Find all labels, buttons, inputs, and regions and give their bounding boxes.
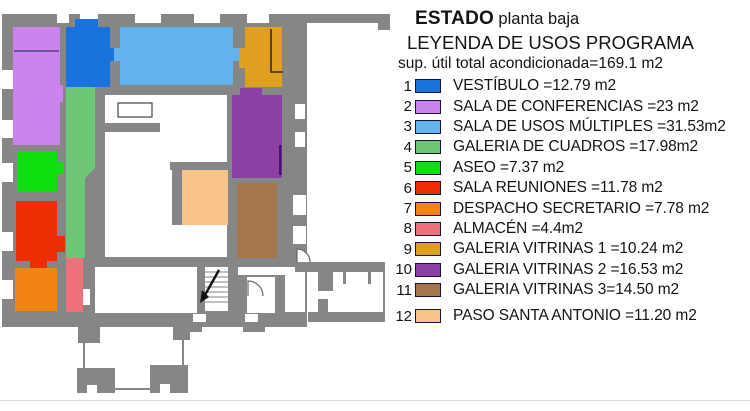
legend-item: 3 SALA DE USOS MÚLTIPLES =31.53m2 bbox=[388, 117, 750, 137]
legend-item-number: 12 bbox=[388, 308, 412, 325]
legend-color-swatch bbox=[415, 309, 441, 323]
legend-item-number: 3 bbox=[388, 118, 412, 135]
legend-color-swatch bbox=[415, 140, 441, 154]
legend-total-area: sup. útil total acondicionada=169.1 m2 bbox=[398, 55, 663, 73]
room-aseo bbox=[17, 152, 57, 192]
floor-plan-drawing bbox=[0, 0, 400, 406]
legend-item-label: PASO SANTA ANTONIO =11.20 m2 bbox=[453, 307, 697, 325]
room-usos-multiples-door-left bbox=[114, 48, 120, 61]
legend-item-number: 2 bbox=[388, 98, 412, 115]
legend-item-label: DESPACHO SECRETARIO =7.78 m2 bbox=[453, 200, 709, 218]
room-sala-conferencias bbox=[13, 27, 60, 145]
room-aseo-door bbox=[57, 162, 64, 174]
vitrina-2-case-line bbox=[279, 145, 282, 175]
legend-item-number: 1 bbox=[388, 78, 412, 95]
legend-item-label: GALERIA VITRINAS 2 =16.53 m2 bbox=[453, 261, 683, 279]
legend-color-swatch bbox=[415, 120, 441, 134]
legend-item-label: GALERIA VITRINAS 1 =10.24 m2 bbox=[453, 240, 683, 258]
legend-color-swatch bbox=[415, 242, 441, 256]
legend-items: 1 VESTÍBULO =12.79 m2 2 SALA DE CONFEREN… bbox=[388, 76, 750, 327]
legend-color-swatch bbox=[415, 161, 441, 175]
plan-title: ESTADO planta baja bbox=[415, 8, 579, 30]
legend-item: 4 GALERIA DE CUADROS =17.98m2 bbox=[388, 137, 750, 157]
room-sala-reuniones-door bbox=[30, 261, 47, 269]
room-almacen bbox=[66, 258, 83, 312]
legend-color-swatch bbox=[415, 283, 441, 297]
legend-item-label: ALMACÉN =4.4m2 bbox=[453, 220, 583, 238]
legend-color-swatch bbox=[415, 202, 441, 216]
legend-item: 6 SALA REUNIONES =11.78 m2 bbox=[388, 178, 750, 198]
legend-item: 5 ASEO =7.37 m2 bbox=[388, 158, 750, 178]
legend-color-swatch bbox=[415, 79, 441, 93]
legend-item: 11 GALERIA VITRINAS 3=14.50 m2 bbox=[388, 280, 750, 300]
room-sala-conferencias-bump bbox=[60, 85, 63, 102]
floor-plan bbox=[0, 0, 400, 406]
legend-color-swatch bbox=[415, 181, 441, 195]
legend-item: 12 PASO SANTA ANTONIO =11.20 m2 bbox=[388, 306, 750, 326]
legend-color-swatch bbox=[415, 100, 441, 114]
legend-item-number: 4 bbox=[388, 139, 412, 156]
legend-item-number: 11 bbox=[388, 282, 412, 299]
legend-item: 1 VESTÍBULO =12.79 m2 bbox=[388, 76, 750, 96]
legend-title: LEYENDA DE USOS PROGRAMA bbox=[407, 32, 694, 54]
scan-edge-line bbox=[0, 400, 750, 401]
room-paso-santa-antonio bbox=[182, 170, 228, 225]
room-usos-multiples-door-right bbox=[233, 48, 239, 61]
plan-title-estado: ESTADO bbox=[415, 8, 494, 29]
room-usos-multiples bbox=[120, 27, 233, 85]
legend-item-number: 7 bbox=[388, 200, 412, 217]
legend-item-number: 10 bbox=[388, 261, 412, 278]
room-vitrinas-3 bbox=[237, 183, 277, 258]
room-sala-reuniones bbox=[16, 201, 57, 261]
legend-item-label: SALA REUNIONES =11.78 m2 bbox=[453, 179, 663, 197]
legend-item: 7 DESPACHO SECRETARIO =7.78 m2 bbox=[388, 198, 750, 218]
legend-color-swatch bbox=[415, 263, 441, 277]
legend-item: 10 GALERIA VITRINAS 2 =16.53 m2 bbox=[388, 260, 750, 280]
legend-item-label: ASEO =7.37 m2 bbox=[453, 159, 564, 177]
room-vitrinas-1 bbox=[239, 27, 282, 87]
legend-item: 8 ALMACÉN =4.4m2 bbox=[388, 219, 750, 239]
legend-item-label: GALERIA VITRINAS 3=14.50 m2 bbox=[453, 281, 679, 299]
legend-item-label: VESTÍBULO =12.79 m2 bbox=[453, 77, 616, 95]
room-vestibulo bbox=[66, 19, 110, 87]
hall-feature-rect bbox=[118, 103, 152, 117]
door-arc-wing bbox=[297, 249, 310, 262]
room-despacho bbox=[15, 268, 57, 311]
legend-item-label: SALA DE USOS MÚLTIPLES =31.53m2 bbox=[453, 118, 726, 136]
legend-item-number: 5 bbox=[388, 159, 412, 176]
legend-item-label: SALA DE CONFERENCIAS =23 m2 bbox=[453, 98, 699, 116]
plan-title-planta: planta baja bbox=[498, 10, 579, 28]
legend-item: 2 SALA DE CONFERENCIAS =23 m2 bbox=[388, 96, 750, 116]
legend-color-swatch bbox=[415, 222, 441, 236]
legend-item-number: 8 bbox=[388, 220, 412, 237]
room-sala-reuniones-bump bbox=[57, 236, 65, 252]
room-vitrinas-2 bbox=[232, 88, 282, 178]
legend-item-number: 9 bbox=[388, 241, 412, 258]
legend-item-number: 6 bbox=[388, 180, 412, 197]
legend-item: 9 GALERIA VITRINAS 1 =10.24 m2 bbox=[388, 239, 750, 259]
legend-item-label: GALERIA DE CUADROS =17.98m2 bbox=[453, 138, 698, 156]
